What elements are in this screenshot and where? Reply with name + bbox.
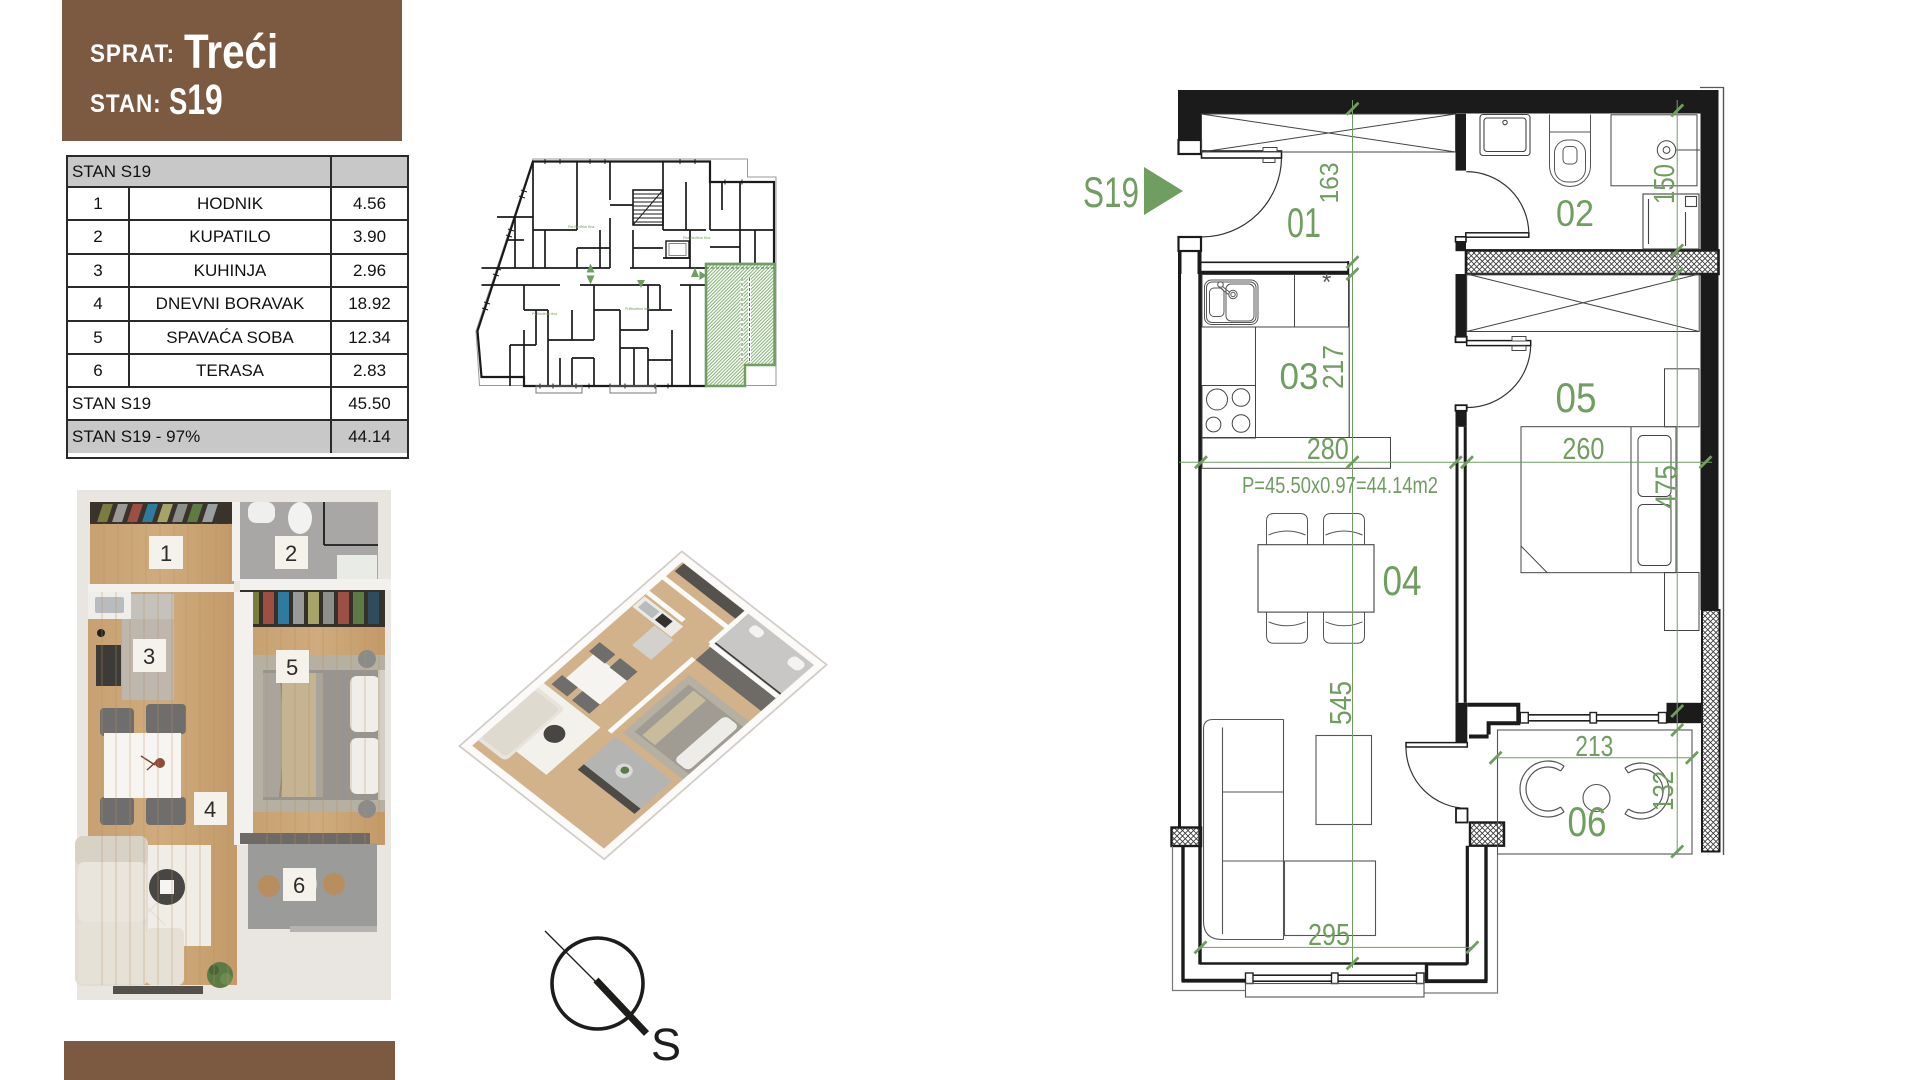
svg-text:*: *: [1322, 269, 1331, 296]
svg-text:295: 295: [1308, 917, 1350, 952]
svg-text:04: 04: [1383, 557, 1422, 604]
svg-text:475: 475: [1648, 465, 1683, 509]
svg-text:06: 06: [1568, 798, 1607, 845]
svg-text:150: 150: [1649, 164, 1681, 204]
svg-text:Ps Bedfma Hna: Ps Bedfma Hna: [532, 312, 557, 316]
svg-text:5: 5: [286, 655, 298, 680]
svg-text:01: 01: [1287, 199, 1321, 246]
svg-text:6: 6: [293, 873, 305, 898]
svg-text:02: 02: [1556, 193, 1594, 234]
svg-text:S: S: [651, 1019, 681, 1070]
svg-text:3: 3: [143, 644, 155, 669]
svg-text:4: 4: [204, 797, 216, 822]
svg-text:260: 260: [1562, 431, 1604, 466]
svg-text:05: 05: [1556, 374, 1597, 421]
svg-text:213: 213: [1575, 731, 1613, 763]
svg-text:Pet Bedfma Hna: Pet Bedfma Hna: [568, 225, 594, 229]
svg-text:217: 217: [1318, 345, 1350, 389]
svg-text:P=45.50x0.97=44.14m2: P=45.50x0.97=44.14m2: [1242, 472, 1438, 498]
svg-text:132: 132: [1648, 771, 1680, 811]
svg-text:S19: S19: [1083, 169, 1139, 217]
svg-text:03: 03: [1280, 356, 1319, 397]
svg-text:2: 2: [285, 541, 297, 566]
svg-text:163: 163: [1314, 163, 1344, 204]
svg-text:545: 545: [1323, 681, 1358, 725]
svg-text:Pea Bedfma Hna: Pea Bedfma Hna: [683, 236, 710, 240]
svg-text:1: 1: [160, 541, 172, 566]
svg-text:280: 280: [1307, 431, 1349, 466]
svg-text:PrBbsdfma had: PrBbsdfma had: [625, 307, 650, 311]
